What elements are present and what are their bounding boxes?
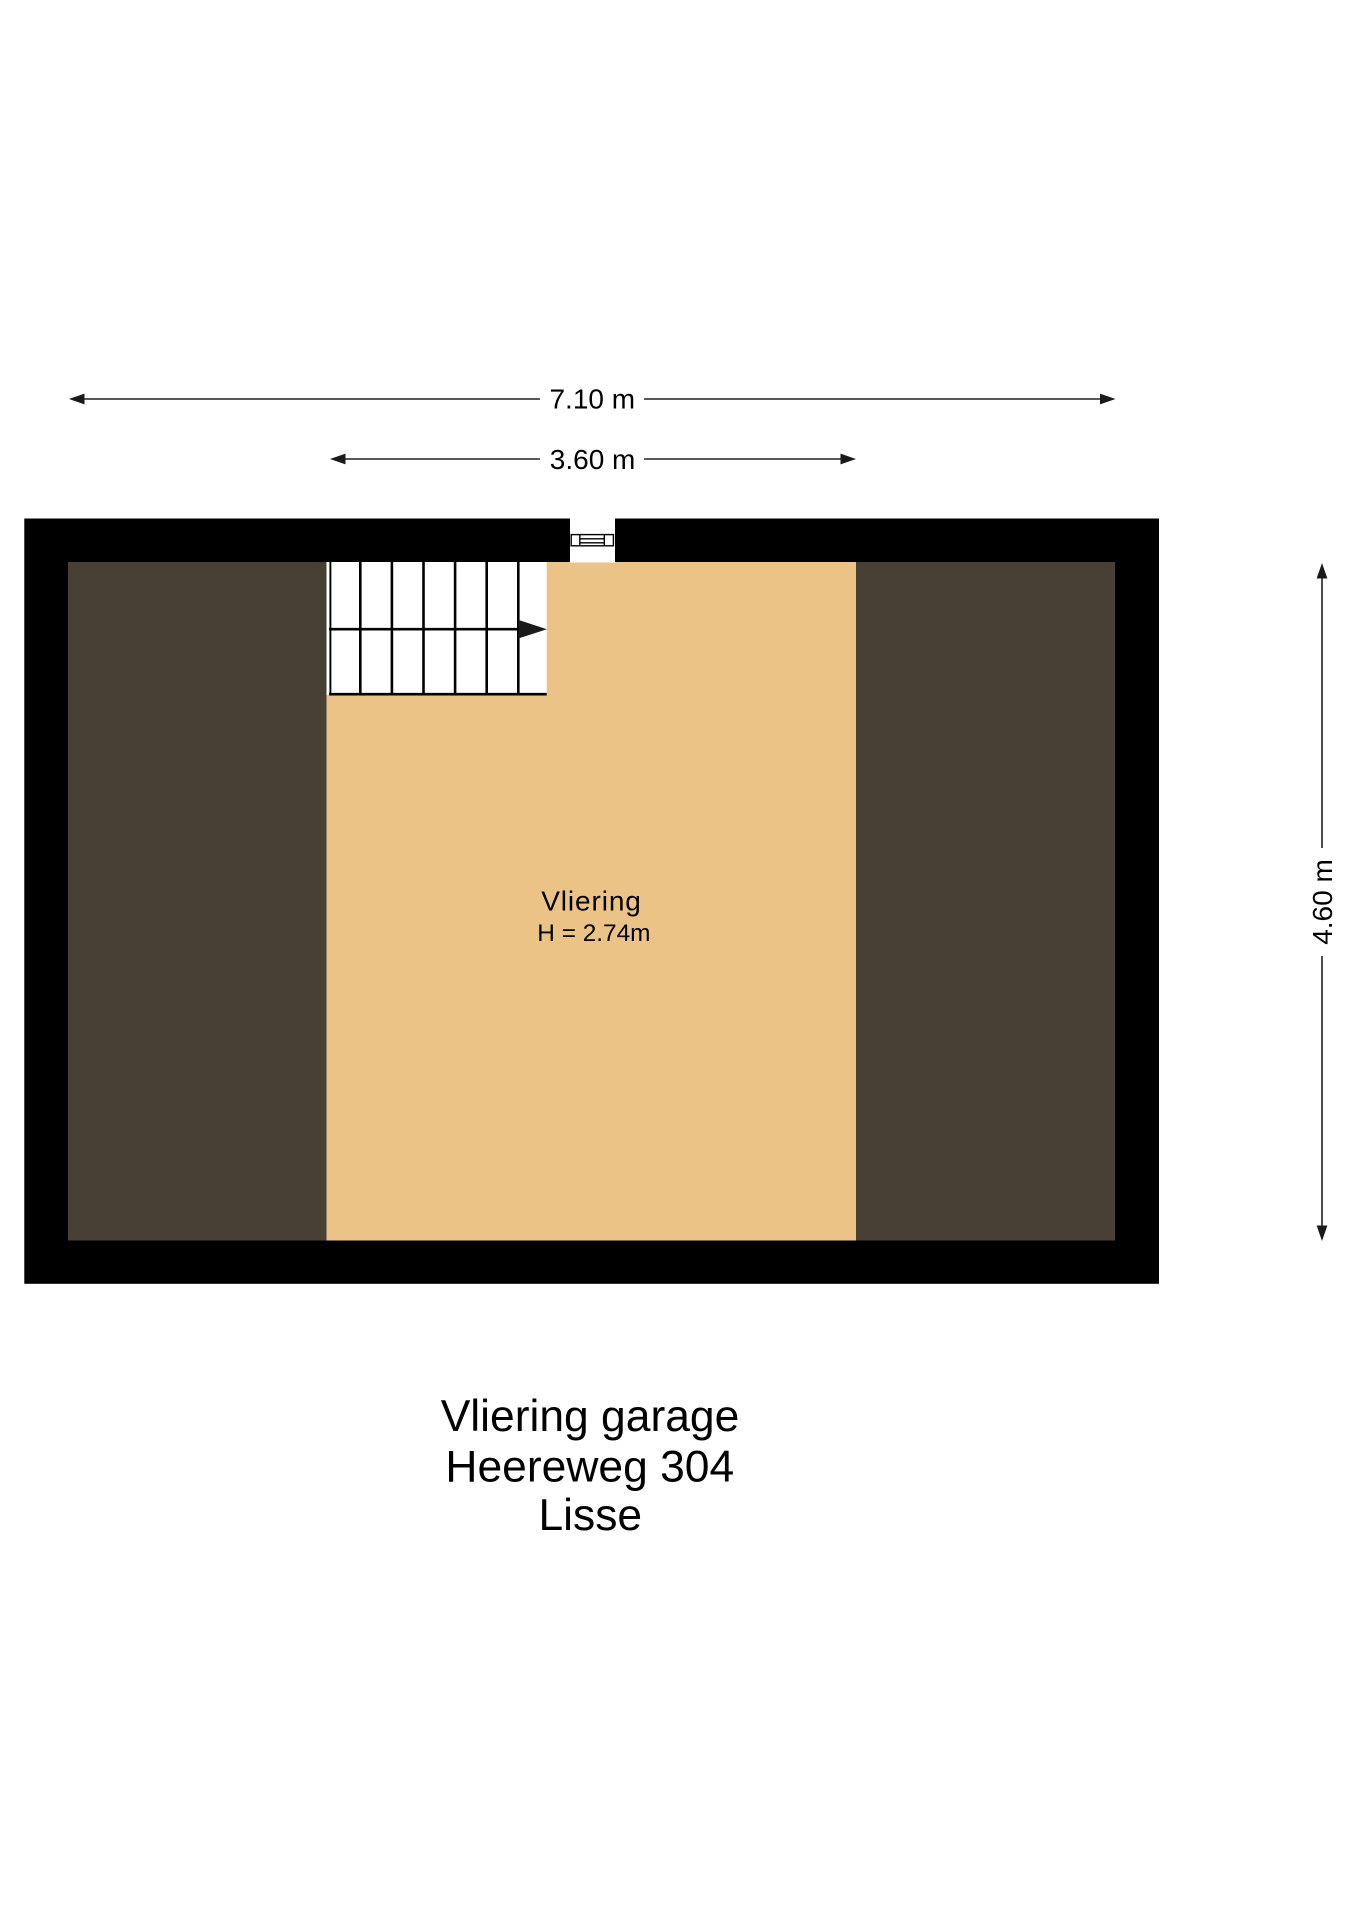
- svg-text:Heereweg 304: Heereweg 304: [445, 1443, 734, 1492]
- svg-text:3.60 m: 3.60 m: [550, 444, 636, 475]
- svg-text:Lisse: Lisse: [538, 1491, 642, 1540]
- svg-text:Vliering: Vliering: [541, 886, 642, 917]
- svg-text:H = 2.74m: H = 2.74m: [537, 920, 650, 947]
- svg-text:Vliering garage: Vliering garage: [441, 1392, 740, 1441]
- svg-text:4.60 m: 4.60 m: [1307, 859, 1338, 945]
- svg-text:7.10 m: 7.10 m: [549, 384, 635, 415]
